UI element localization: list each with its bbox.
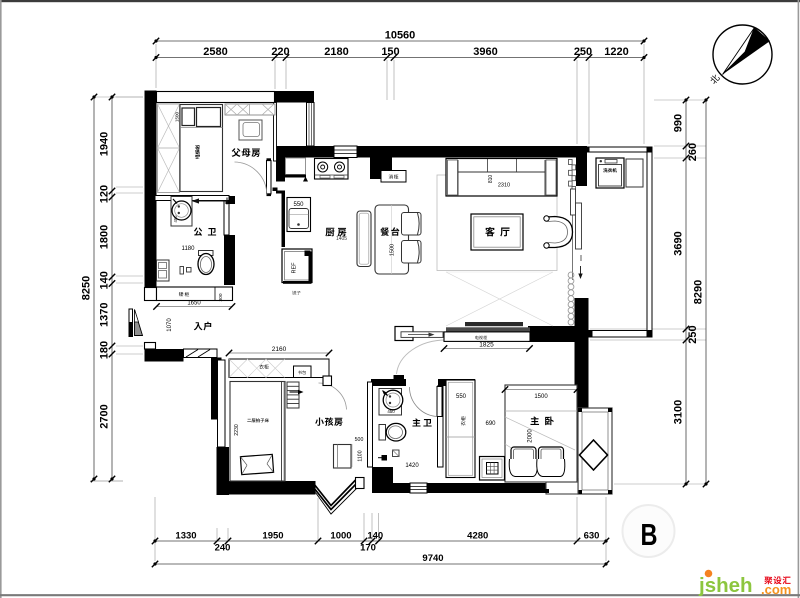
svg-text:1420: 1420 [405, 463, 419, 469]
svg-text:1370: 1370 [99, 303, 111, 327]
svg-text:3690: 3690 [673, 231, 685, 255]
svg-text:1330: 1330 [175, 531, 196, 542]
svg-text:450: 450 [173, 215, 178, 223]
svg-text:260: 260 [687, 143, 699, 161]
svg-text:4280: 4280 [467, 531, 488, 542]
svg-text:2180: 2180 [324, 46, 348, 58]
svg-text:1180: 1180 [182, 246, 196, 252]
svg-text:990: 990 [673, 114, 685, 132]
svg-text:2160: 2160 [272, 346, 287, 353]
svg-text:1950: 1950 [262, 531, 283, 542]
svg-text:250: 250 [574, 46, 592, 58]
svg-text:2580: 2580 [203, 46, 227, 58]
svg-text:1940: 1940 [99, 132, 111, 156]
svg-text:9740: 9740 [422, 553, 443, 564]
svg-text:170: 170 [360, 543, 376, 554]
svg-text:10560: 10560 [385, 30, 416, 42]
svg-text:550: 550 [293, 202, 304, 208]
svg-text:1000: 1000 [330, 531, 351, 542]
svg-text:450: 450 [387, 409, 395, 414]
svg-text:8250: 8250 [81, 276, 93, 300]
svg-text:300: 300 [218, 293, 224, 301]
svg-text:1500: 1500 [390, 244, 396, 256]
svg-text:120: 120 [99, 185, 111, 203]
svg-text:1405: 1405 [336, 236, 347, 242]
svg-text:1070: 1070 [167, 318, 173, 332]
svg-text:550: 550 [456, 394, 467, 400]
svg-text:2310: 2310 [498, 183, 510, 189]
svg-text:630: 630 [584, 531, 600, 542]
svg-text:B: B [641, 517, 658, 552]
svg-text:690: 690 [485, 421, 496, 427]
svg-text:240: 240 [215, 543, 231, 554]
svg-text:jsheh: jsheh [698, 574, 753, 597]
svg-text:2000: 2000 [528, 429, 534, 443]
svg-text:1650: 1650 [187, 301, 201, 307]
svg-text:140: 140 [367, 531, 383, 542]
svg-text:250: 250 [687, 325, 699, 343]
svg-text:1825: 1825 [479, 342, 494, 349]
svg-text:1940: 1940 [196, 145, 202, 157]
svg-text:810: 810 [488, 175, 494, 184]
svg-text:500: 500 [355, 437, 364, 443]
svg-text:220: 220 [271, 46, 289, 58]
svg-text:1220: 1220 [604, 46, 628, 58]
svg-text:140: 140 [99, 271, 111, 289]
svg-text:180: 180 [99, 341, 111, 359]
svg-text:8290: 8290 [693, 280, 705, 304]
svg-text:REF: REF [292, 262, 298, 274]
svg-text:3960: 3960 [473, 46, 497, 58]
svg-text:1500: 1500 [175, 111, 180, 122]
svg-text:.com: .com [761, 582, 791, 597]
svg-text:150: 150 [381, 46, 399, 58]
svg-text:1500: 1500 [534, 394, 548, 400]
svg-text:1800: 1800 [99, 225, 111, 249]
svg-text:1100: 1100 [358, 450, 364, 461]
svg-text:2700: 2700 [99, 404, 111, 428]
svg-text:3100: 3100 [673, 400, 685, 424]
svg-text:2230: 2230 [234, 424, 240, 436]
